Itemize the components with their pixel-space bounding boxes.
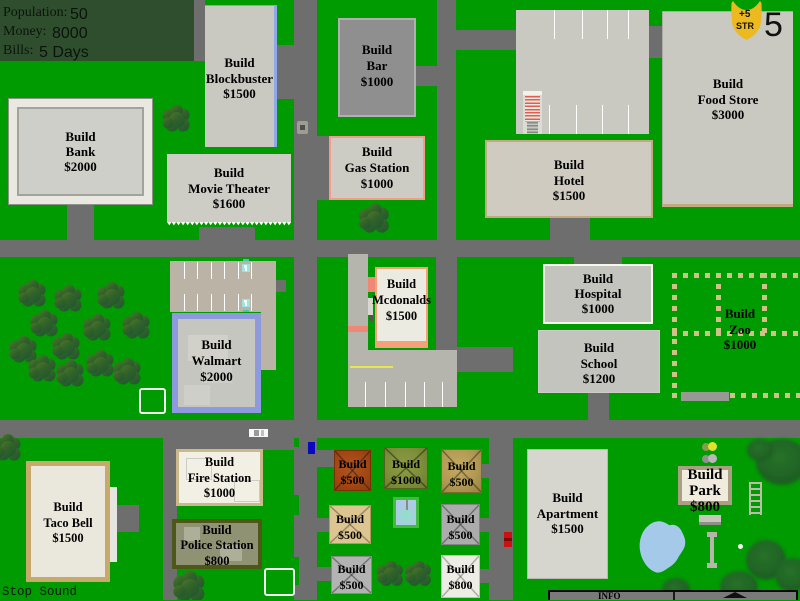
svg-text:STR: STR xyxy=(736,21,755,31)
svg-text:+5: +5 xyxy=(739,9,751,20)
